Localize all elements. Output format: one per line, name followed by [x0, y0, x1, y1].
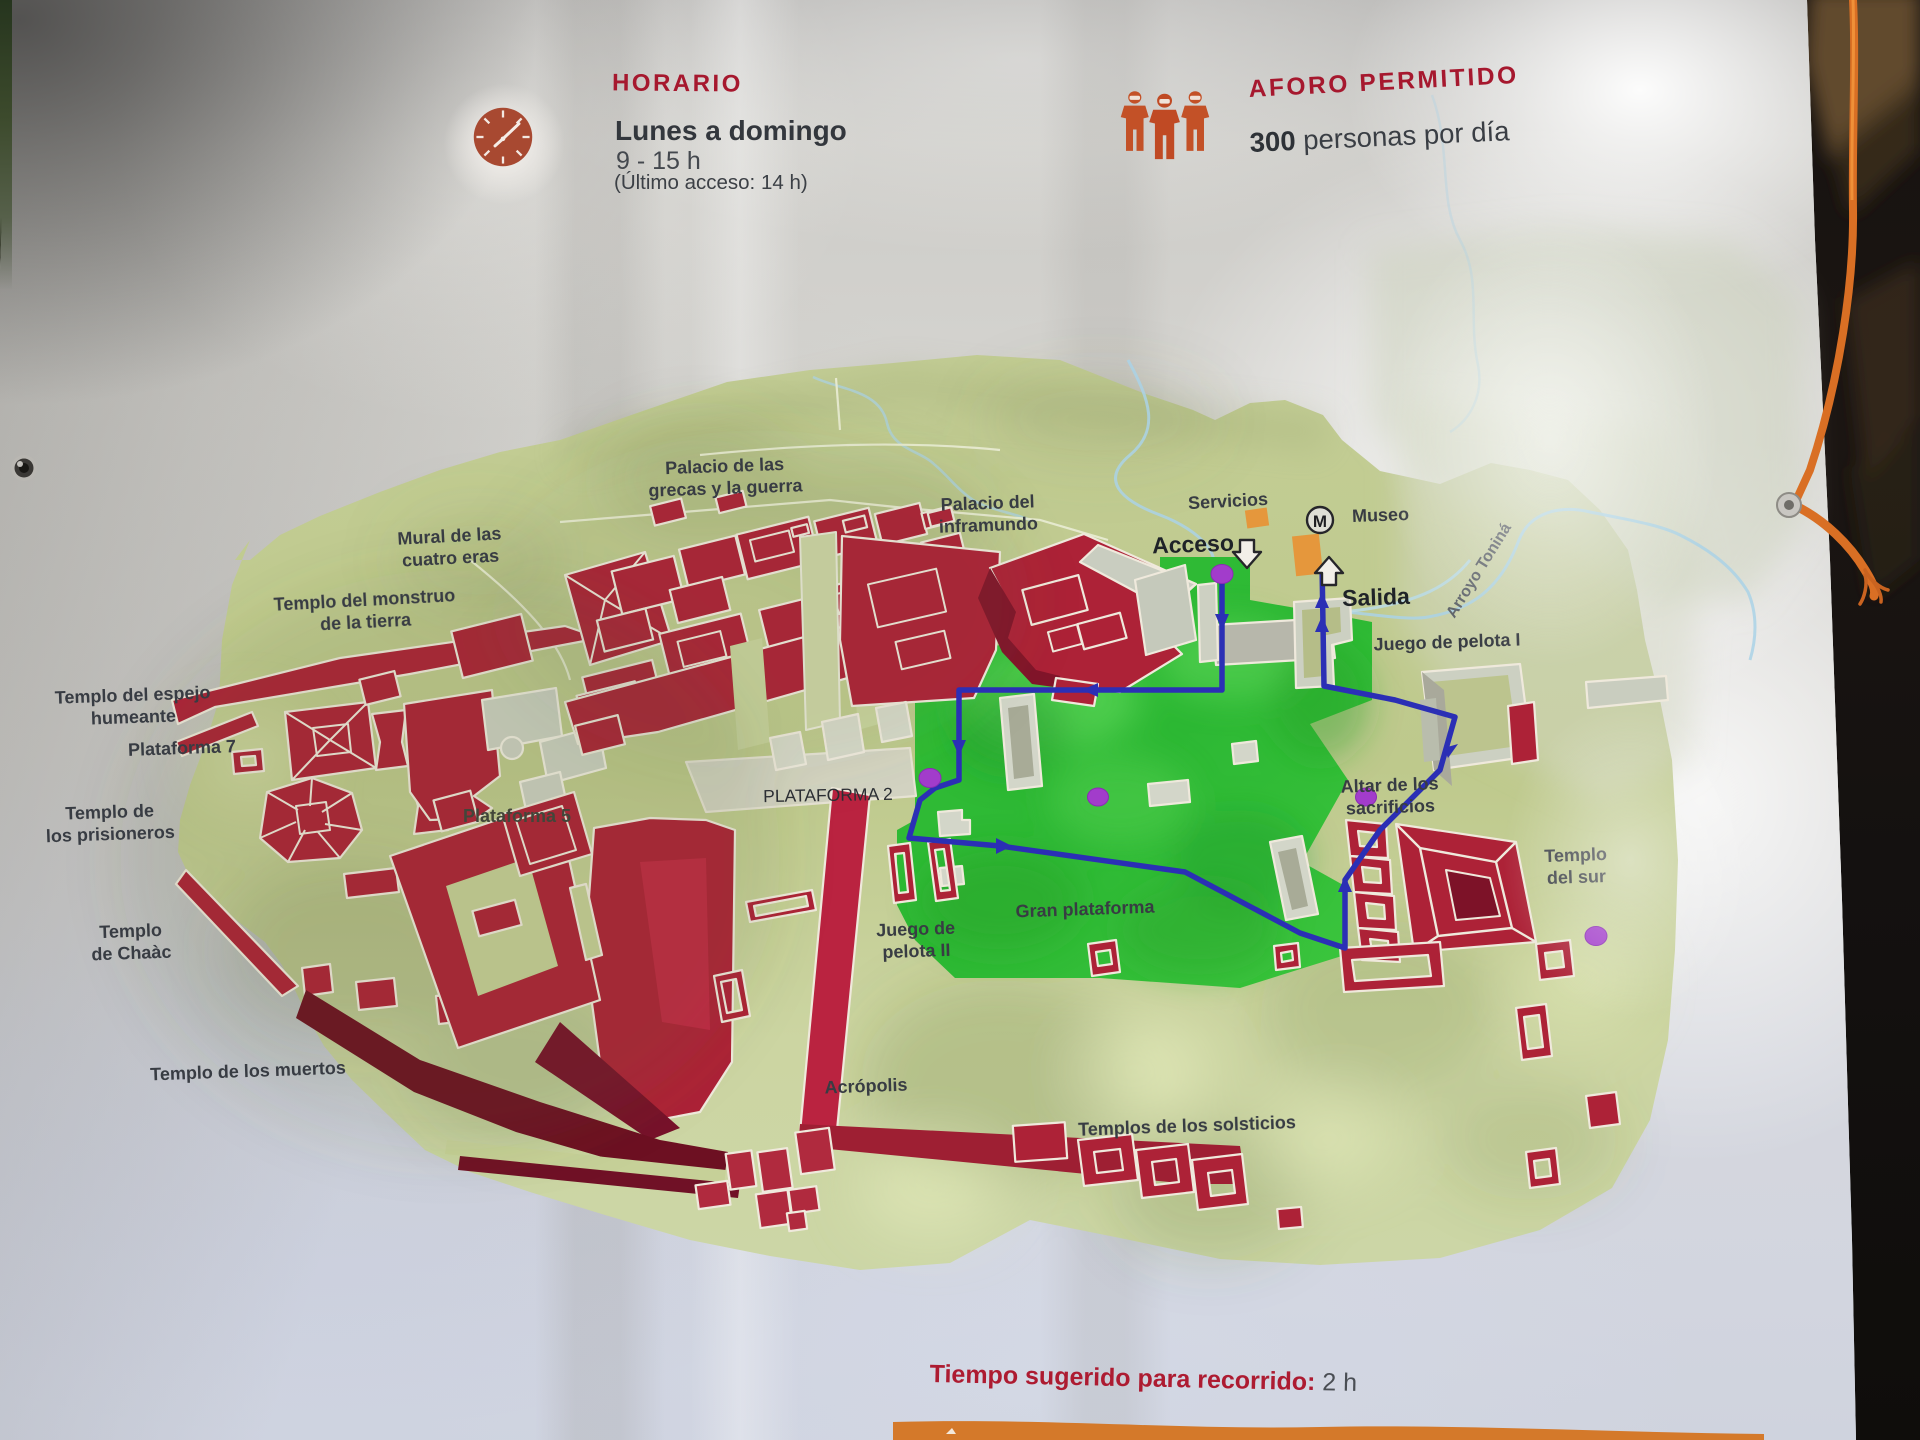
svg-text:Templo de: Templo de [65, 800, 154, 823]
svg-text:de Chaàc: de Chaàc [91, 942, 172, 965]
svg-text:Palacio de las: Palacio de las [665, 454, 785, 478]
svg-text:Acrópolis: Acrópolis [824, 1075, 908, 1098]
svg-text:humeante: humeante [91, 706, 177, 729]
svg-text:inframundo: inframundo [939, 513, 1039, 536]
svg-text:Juego de: Juego de [876, 918, 956, 941]
svg-text:pelota II: pelota II [882, 940, 951, 962]
svg-text:Servicios: Servicios [1188, 489, 1269, 513]
svg-text:Acceso: Acceso [1152, 530, 1235, 559]
svg-text:Plataforma 5: Plataforma 5 [463, 806, 571, 826]
svg-text:PLATAFORMA 2: PLATAFORMA 2 [763, 784, 893, 806]
svg-text:Plataforma 7: Plataforma 7 [128, 736, 237, 760]
svg-text:Palacio del: Palacio del [940, 491, 1035, 514]
svg-text:Templo: Templo [99, 920, 162, 942]
